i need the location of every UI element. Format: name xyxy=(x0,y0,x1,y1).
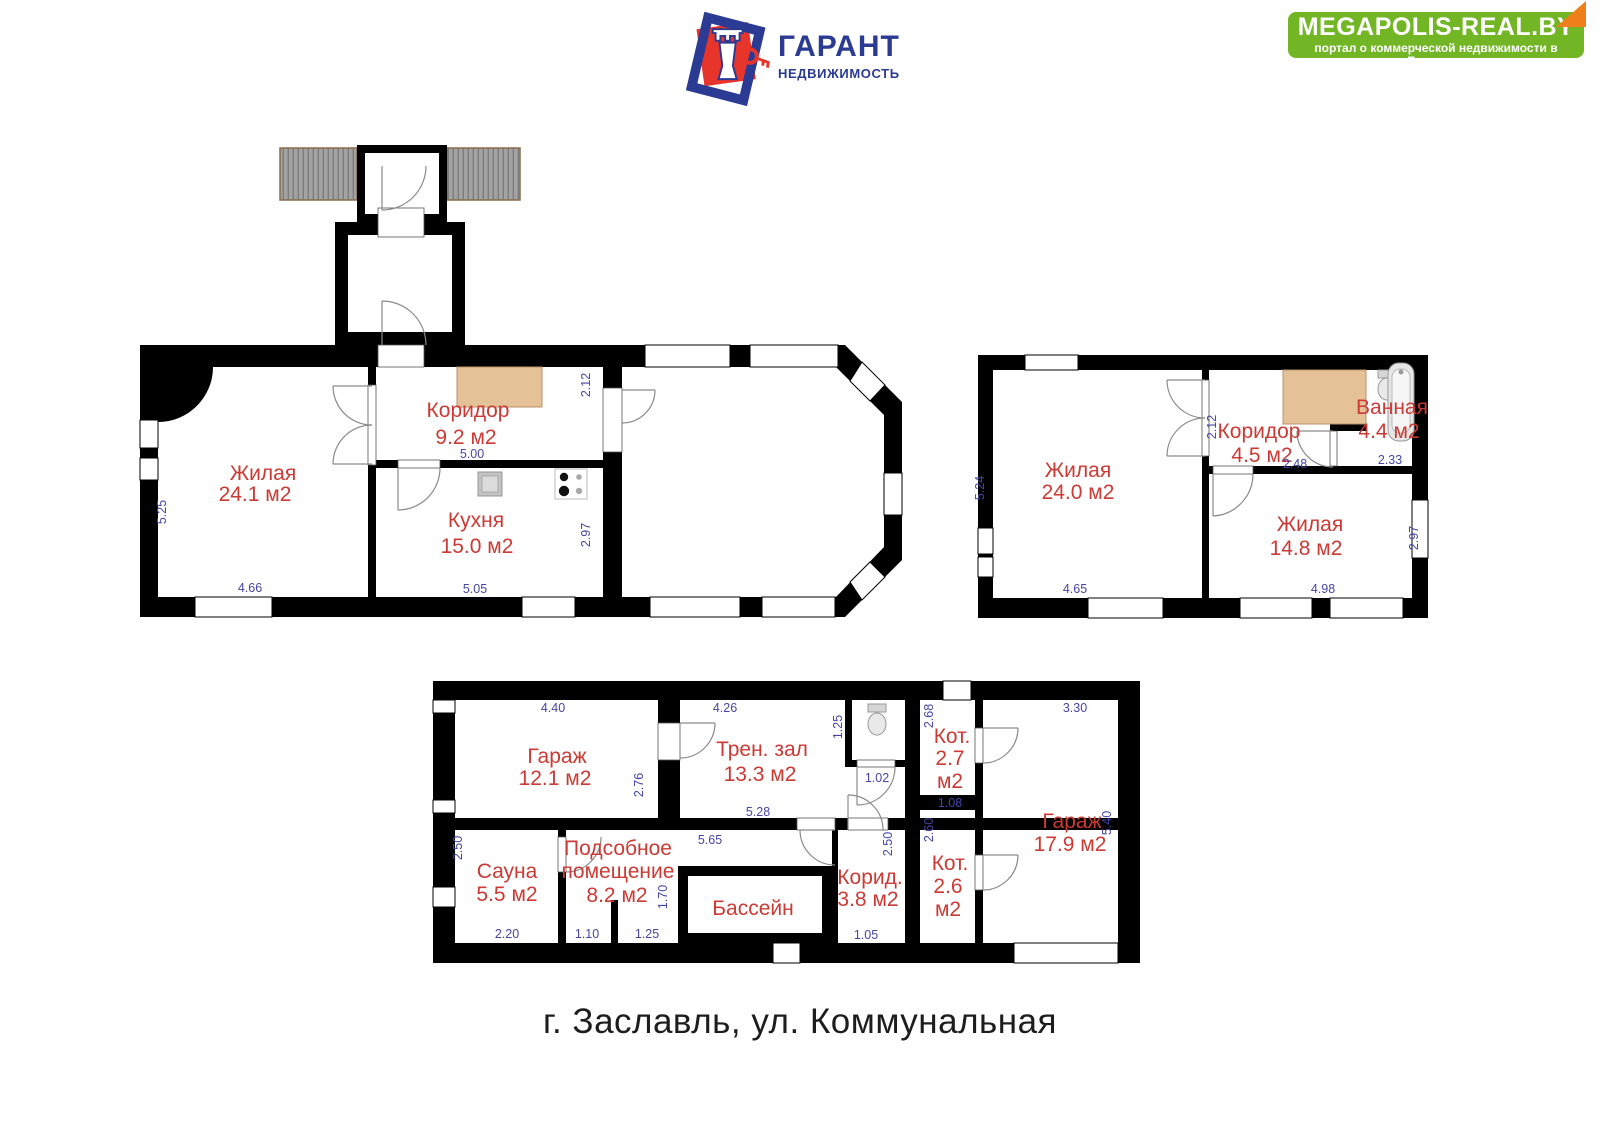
dim-garage1-height: 2.76 xyxy=(632,773,646,797)
dim-living1-height: 5.24 xyxy=(973,476,987,500)
dim-boiler1-width: 1.08 xyxy=(938,796,962,810)
plan2-labels: Жилая 24.0 м2 Коридор 4.5 м2 Ванная 4.4 … xyxy=(973,396,1428,596)
property-address: г. Заславль, ул. Коммунальная xyxy=(0,1002,1600,1042)
agency-logo-icon xyxy=(686,10,774,106)
dim-hall-height: 2.50 xyxy=(881,832,895,856)
room-label-pool: Бассейн xyxy=(712,897,793,920)
room-area-utility: 8.2 м2 xyxy=(586,884,647,907)
dim-wc-door: 1.02 xyxy=(865,771,889,785)
dim-pool-height: 1.70 xyxy=(656,885,670,909)
dim-gym-width2: 5.28 xyxy=(746,805,770,819)
dim-living-height: 5.25 xyxy=(155,500,169,524)
dim-gym-width: 4.26 xyxy=(713,701,737,715)
room-area-living2: 14.8 м2 xyxy=(1270,537,1343,560)
dim-utility-width: 5.65 xyxy=(698,833,722,847)
dim-sauna-height: 2.50 xyxy=(451,836,465,860)
fence-right xyxy=(447,148,520,200)
dim-hall-width: 1.05 xyxy=(854,928,878,942)
plan3-fixtures xyxy=(868,704,886,735)
room-label-hall: Корид. xyxy=(837,866,902,889)
room-label-gym: Трен. зал xyxy=(716,738,808,761)
room-area-living: 24.1 м2 xyxy=(219,483,292,506)
dim-corridor-width: 2.48 xyxy=(1283,457,1307,471)
dim-kitchen-width: 5.05 xyxy=(463,582,487,596)
dim-living2-height: 2.97 xyxy=(1407,526,1421,550)
portal-subtitle: портал о коммерческой недвижимости в Бел… xyxy=(1288,42,1584,68)
dim-boiler2-height: 2.60 xyxy=(922,818,936,842)
portal-banner: MEGAPOLIS-REAL.BY портал о коммерческой … xyxy=(1288,12,1584,58)
dim-corridor-height: 2.12 xyxy=(1205,415,1219,439)
room-label-boiler2: Кот. xyxy=(932,852,969,875)
dim-corridor-height: 2.12 xyxy=(579,373,593,397)
dim-kitchen-height: 2.97 xyxy=(579,523,593,547)
dim-garage2-height: 5.40 xyxy=(1100,811,1114,835)
room-area-boiler1: 2.7 xyxy=(935,747,964,770)
dim-wc-height: 1.25 xyxy=(831,715,845,739)
room-area-sauna: 5.5 м2 xyxy=(476,883,537,906)
room-label-utility-1: Подсобное xyxy=(564,837,672,860)
room-label-garage1: Гараж xyxy=(527,745,586,768)
agency-logo: ГАРАНТ НЕДВИЖИМОСТЬ xyxy=(686,6,906,106)
room-area-living1: 24.0 м2 xyxy=(1042,481,1115,504)
dim-utility-w2: 1.25 xyxy=(635,927,659,941)
dim-bath-width: 2.33 xyxy=(1378,453,1402,467)
dim-sauna-width: 2.20 xyxy=(495,927,519,941)
room-label-corridor: Коридор xyxy=(1218,420,1301,443)
stove xyxy=(555,469,587,499)
room-unit-boiler2: м2 xyxy=(935,898,961,921)
dim-living1-width: 4.65 xyxy=(1063,582,1087,596)
room-label-utility-2: помещение xyxy=(562,860,675,883)
room-area-boiler2: 2.6 xyxy=(933,875,962,898)
room-area-garage2: 17.9 м2 xyxy=(1034,833,1107,856)
room-label-corridor: Коридор xyxy=(427,399,510,422)
room-label-sauna: Сауна xyxy=(477,860,538,883)
floor-plan-first-right: Жилая 24.0 м2 Коридор 4.5 м2 Ванная 4.4 … xyxy=(960,345,1430,620)
room-label-kitchen: Кухня xyxy=(448,509,504,532)
room-label-living1: Жилая xyxy=(1045,459,1111,482)
wardrobe xyxy=(1283,370,1366,424)
agency-name: ГАРАНТ xyxy=(778,32,908,62)
dim-corridor-width: 5.00 xyxy=(460,447,484,461)
room-label-living: Жилая xyxy=(230,462,296,485)
room-label-garage2: Гараж xyxy=(1042,810,1101,833)
sink xyxy=(478,472,502,496)
dim-utility-w1: 1.10 xyxy=(575,927,599,941)
room-unit-boiler1: м2 xyxy=(937,770,963,793)
toilet-icon xyxy=(868,704,886,735)
agency-tagline: НЕДВИЖИМОСТЬ xyxy=(778,66,908,81)
room-label-boiler1: Кот. xyxy=(934,725,971,748)
room-area-kitchen: 15.0 м2 xyxy=(441,535,514,558)
dim-living-width: 4.66 xyxy=(238,581,262,595)
banner-corner-fold xyxy=(1556,1,1586,27)
dim-garage1-width: 4.40 xyxy=(541,701,565,715)
room-area-gym: 13.3 м2 xyxy=(724,763,797,786)
room-area-hall: 3.8 м2 xyxy=(837,888,898,911)
room-area-corridor: 9.2 м2 xyxy=(435,426,496,449)
floor-plan-basement: 4.40 Гараж 12.1 м2 2.76 4.26 Трен. зал 1… xyxy=(425,660,1140,970)
room-label-living2: Жилая xyxy=(1277,513,1343,536)
room-area-garage1: 12.1 м2 xyxy=(519,767,592,790)
plan3-walls xyxy=(433,681,1140,963)
fence-left xyxy=(280,148,357,200)
floor-plan-first-left: Жилая 24.1 м2 Коридор 9.2 м2 Кухня 15.0 … xyxy=(135,128,910,623)
floorplan-page: ГАРАНТ НЕДВИЖИМОСТЬ MEGAPOLIS-REAL.BY по… xyxy=(0,0,1600,1124)
room-area-bath: 4.4 м2 xyxy=(1358,420,1419,443)
portal-title: MEGAPOLIS-REAL.BY xyxy=(1288,14,1584,42)
agency-logo-text: ГАРАНТ НЕДВИЖИМОСТЬ xyxy=(778,32,908,81)
room-label-bath: Ванная xyxy=(1356,396,1428,419)
dim-garage2-width: 3.30 xyxy=(1063,701,1087,715)
dim-living2-width: 4.98 xyxy=(1311,582,1335,596)
